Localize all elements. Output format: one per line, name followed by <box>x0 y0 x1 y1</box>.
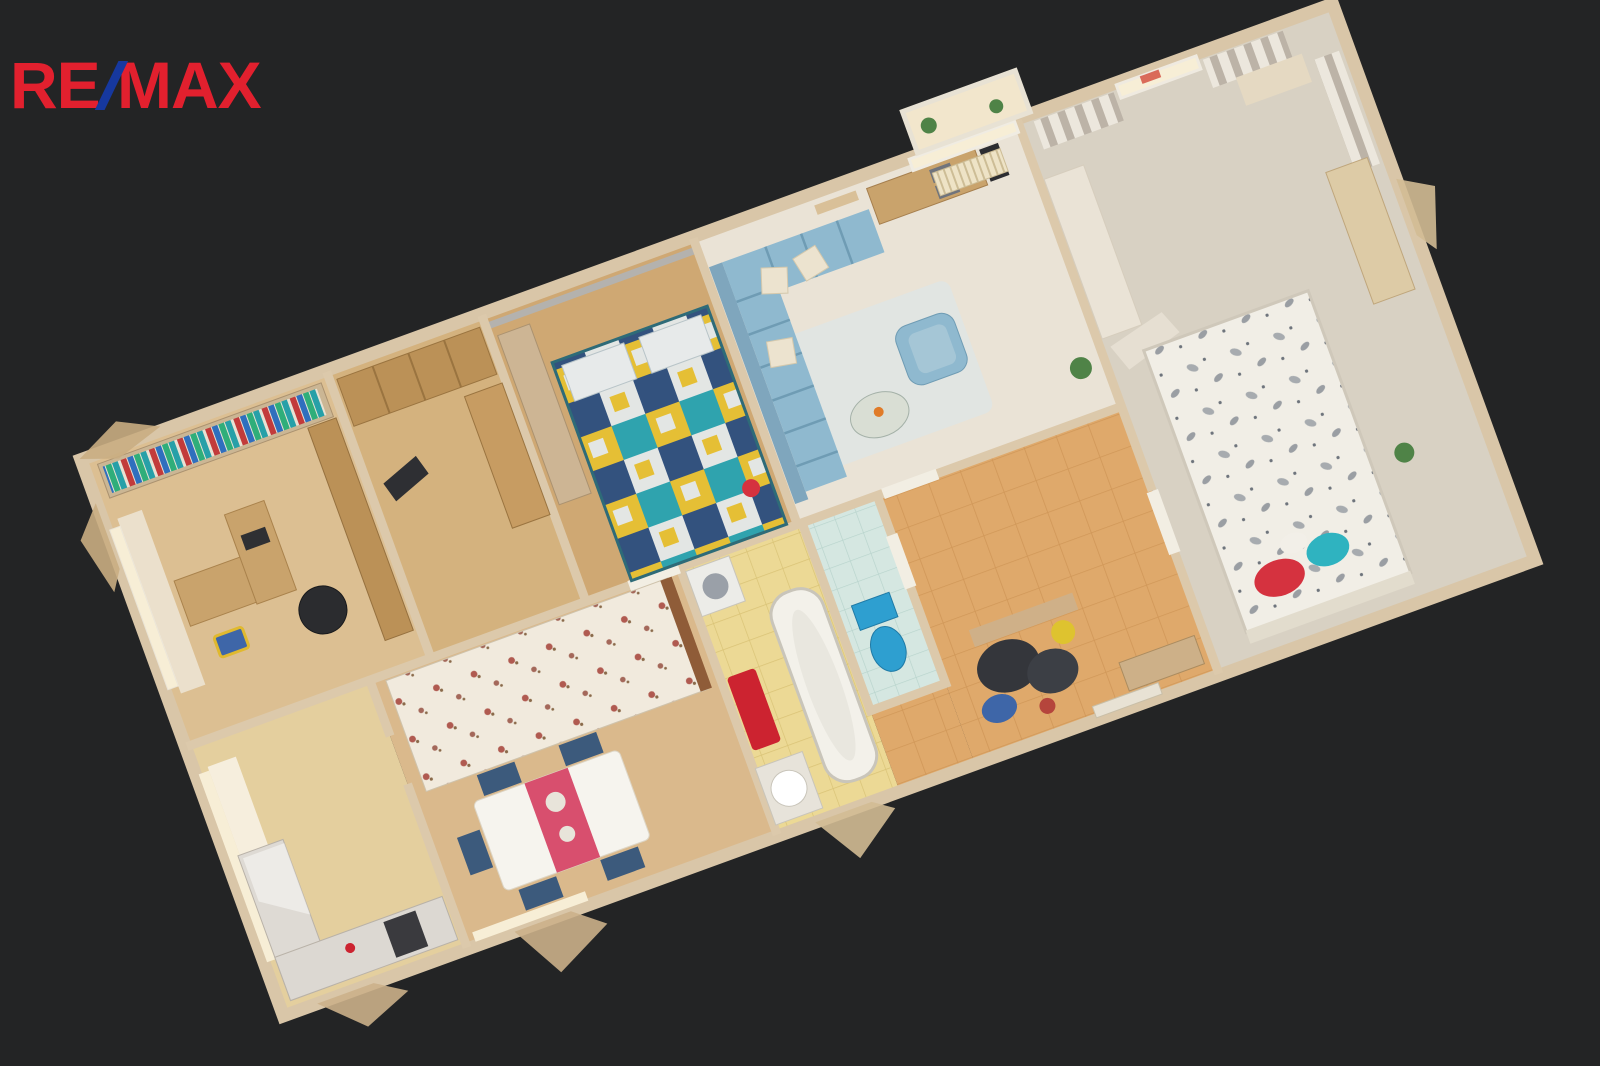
apartment-rotated-group <box>39 0 1586 1066</box>
sofa-pillow-3 <box>766 337 796 367</box>
page-background: { "page": { "description": "3D dollhouse… <box>0 0 1600 1066</box>
apartment-3d-dollhouse-view[interactable] <box>0 0 1600 1066</box>
sofa-pillow-1 <box>761 267 788 294</box>
